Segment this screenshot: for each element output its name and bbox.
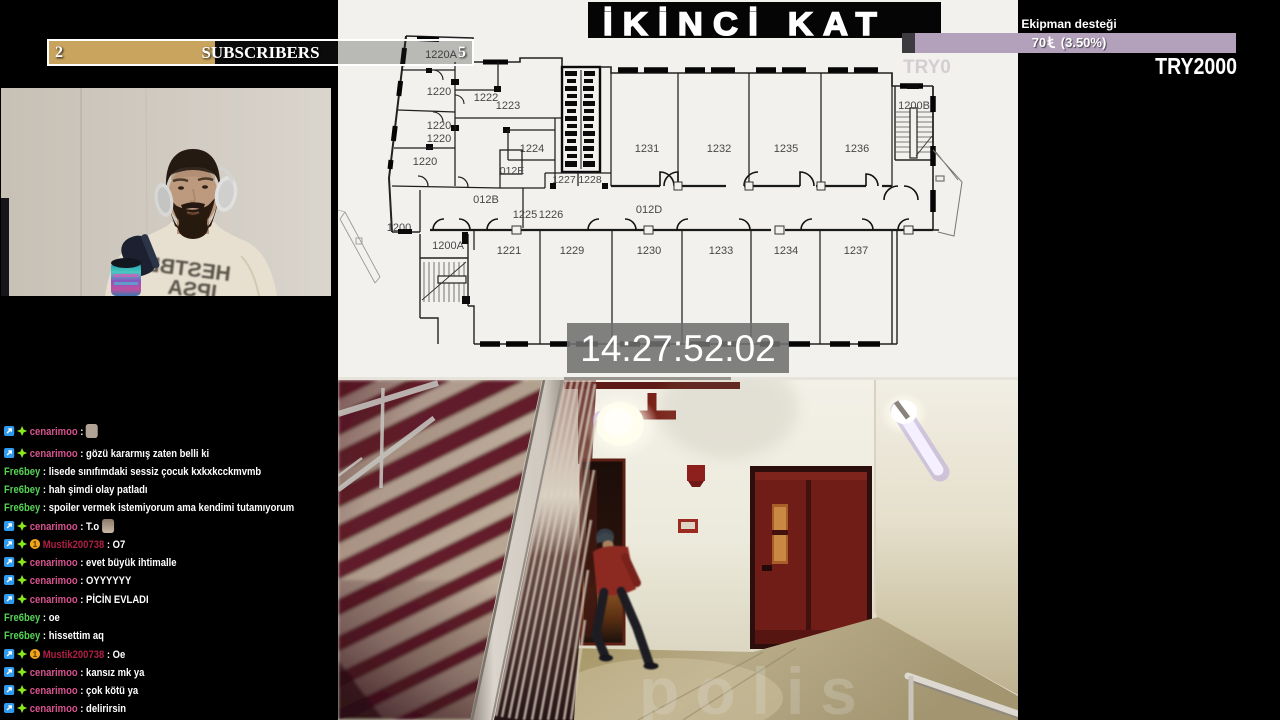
svg-text:1220: 1220 (427, 86, 451, 98)
svg-text:1230: 1230 (637, 245, 661, 257)
svg-text:1227: 1227 (552, 174, 576, 186)
svg-text:1: 1 (33, 650, 38, 659)
svg-text:1223: 1223 (496, 100, 520, 112)
svg-text:1200A: 1200A (432, 240, 464, 252)
svg-text:1236: 1236 (845, 143, 869, 155)
svg-text:1229: 1229 (560, 245, 584, 257)
svg-text:1234: 1234 (774, 245, 798, 257)
svg-text:012D: 012D (636, 204, 662, 216)
svg-text:1225: 1225 (513, 209, 537, 221)
svg-text:1221: 1221 (497, 245, 521, 257)
svg-text:1228: 1228 (578, 174, 602, 186)
svg-text:14:27:52:02: 14:27:52:02 (580, 328, 775, 369)
svg-text:İKİNCİ KAT: İKİNCİ KAT (603, 7, 887, 43)
svg-text:012E: 012E (500, 165, 525, 177)
svg-text:1237: 1237 (844, 245, 868, 257)
svg-text:1200B: 1200B (898, 100, 930, 112)
svg-text:1220: 1220 (427, 133, 451, 145)
svg-text:1233: 1233 (709, 245, 733, 257)
svg-text:1231: 1231 (635, 143, 659, 155)
svg-text:1226: 1226 (539, 209, 563, 221)
svg-text:1224: 1224 (520, 143, 544, 155)
svg-text:012B: 012B (473, 194, 499, 206)
svg-text:1220: 1220 (427, 120, 451, 132)
svg-text:1: 1 (33, 540, 38, 549)
svg-text:1222: 1222 (474, 92, 498, 104)
svg-text:polis: polis (639, 654, 873, 720)
svg-text:1220: 1220 (413, 156, 437, 168)
svg-text:TRY0: TRY0 (903, 57, 951, 78)
svg-text:1232: 1232 (707, 143, 731, 155)
svg-text:1235: 1235 (774, 143, 798, 155)
